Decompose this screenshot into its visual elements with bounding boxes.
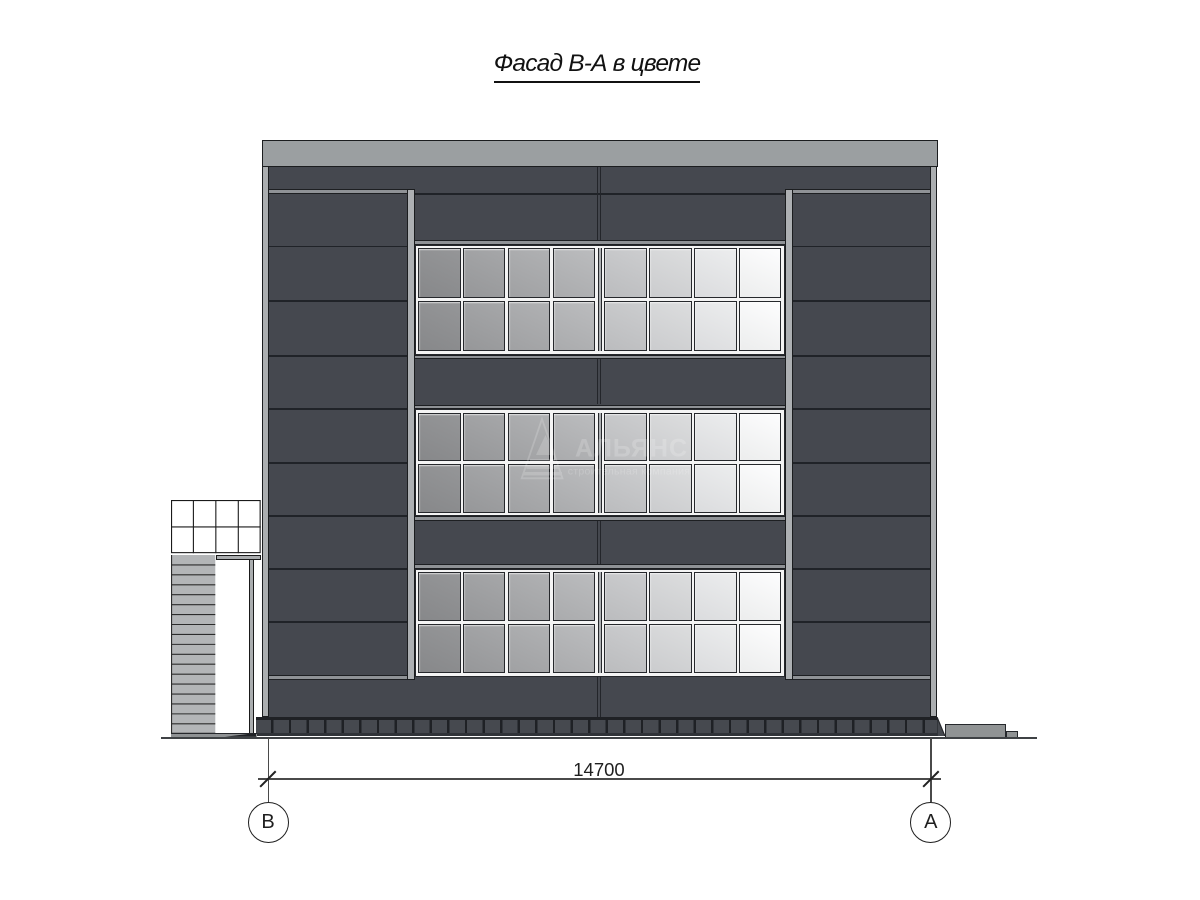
svg-text:строительная компания: строительная компания	[568, 466, 691, 478]
svg-text:АЛЬЯНС: АЛЬЯНС	[575, 435, 688, 463]
